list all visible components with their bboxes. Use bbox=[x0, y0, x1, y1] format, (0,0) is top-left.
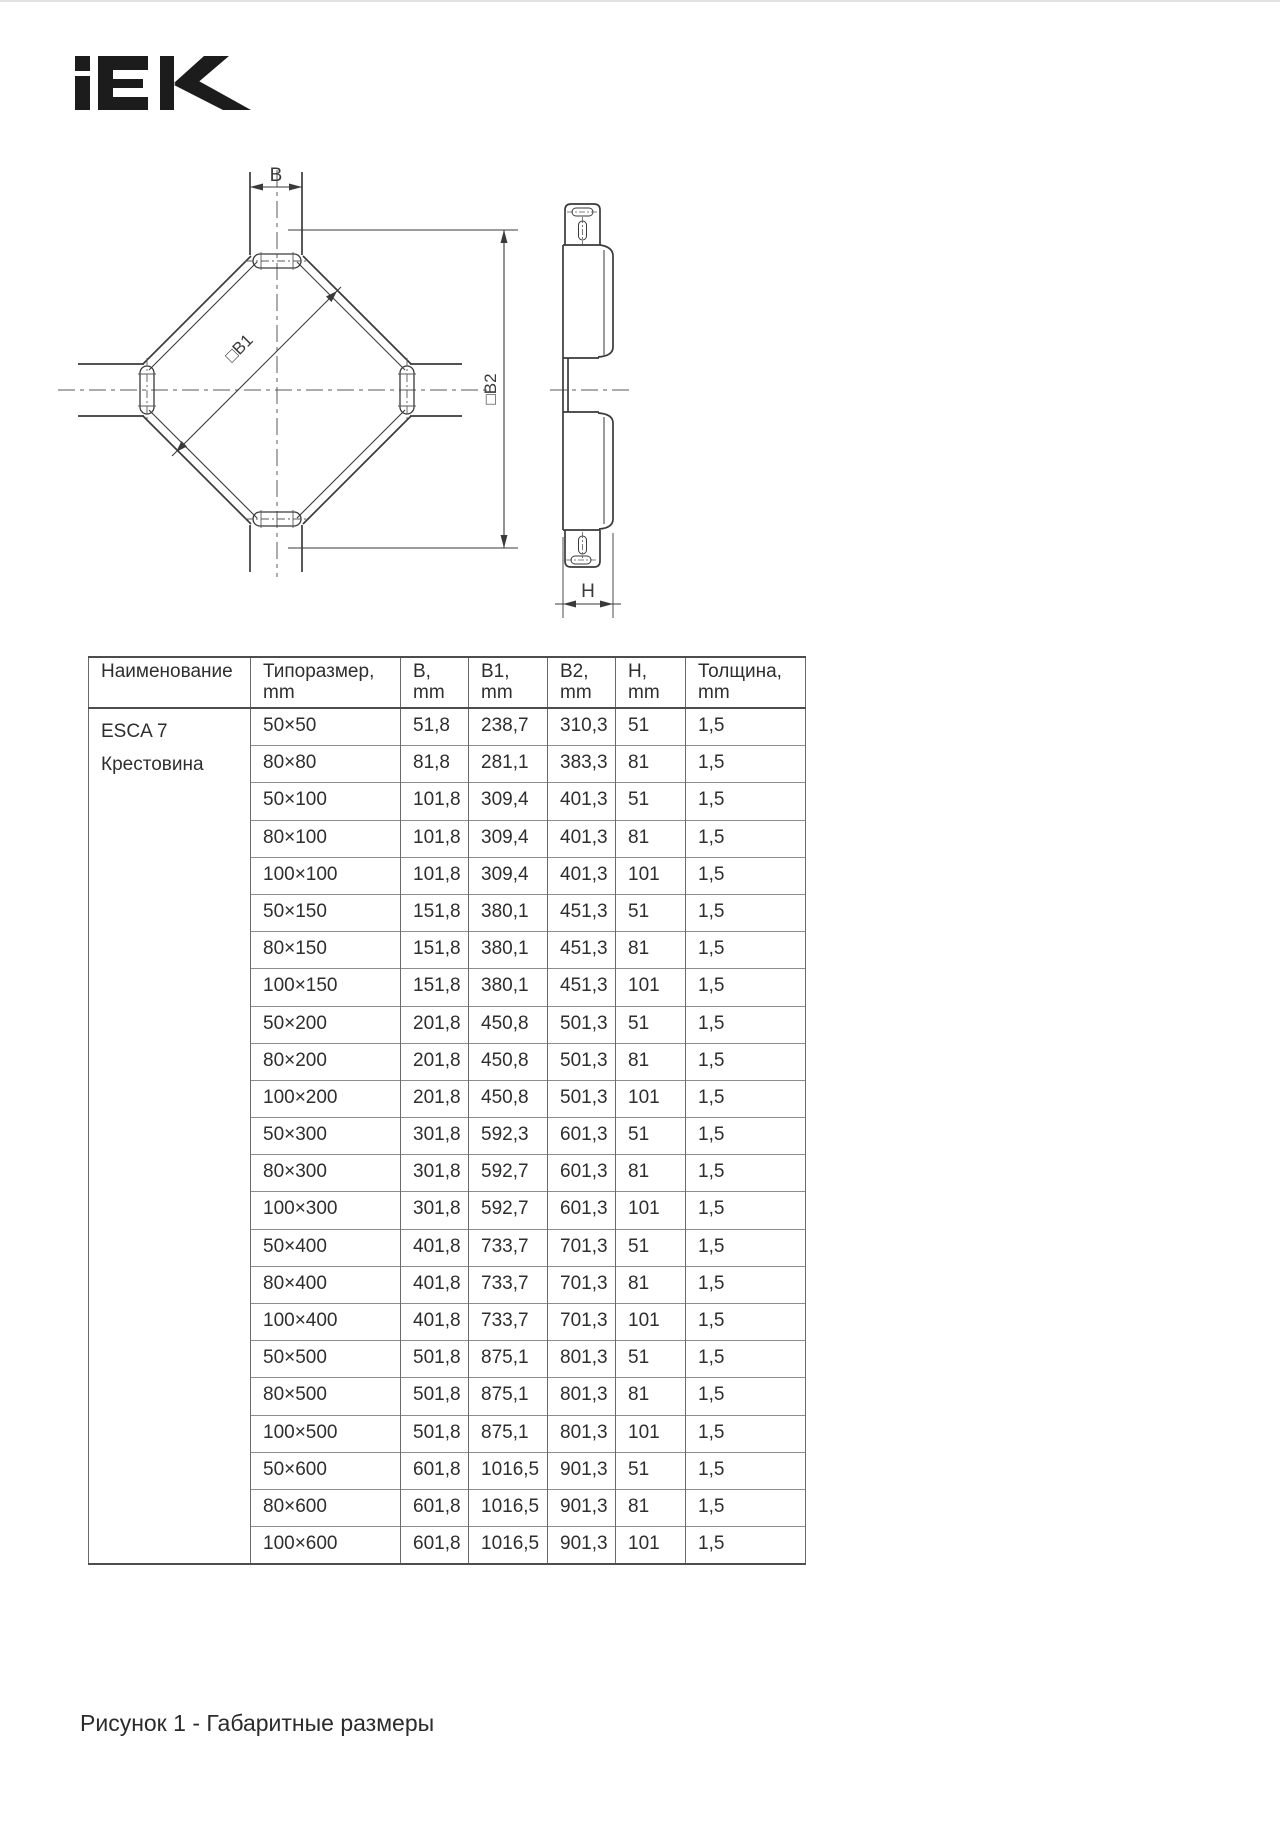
cell-b2: 601,3 bbox=[548, 1155, 616, 1192]
dim-label-b1: □B1 bbox=[221, 330, 256, 365]
cell-b2: 701,3 bbox=[548, 1304, 616, 1341]
cell-h: 101 bbox=[616, 1192, 686, 1229]
cell-size: 100×150 bbox=[251, 969, 401, 1006]
cell-b2: 451,3 bbox=[548, 969, 616, 1006]
cell-thickness: 1,5 bbox=[686, 894, 806, 931]
cell-b: 501,8 bbox=[401, 1341, 469, 1378]
cell-b: 51,8 bbox=[401, 708, 469, 746]
dim-b1: □B1 bbox=[172, 287, 341, 456]
cell-size: 50×400 bbox=[251, 1229, 401, 1266]
cell-b1: 592,7 bbox=[469, 1192, 548, 1229]
table-row: ESCA 7Крестовина50×5051,8238,7310,3511,5 bbox=[89, 708, 806, 746]
cell-size: 50×100 bbox=[251, 783, 401, 820]
cell-b: 601,8 bbox=[401, 1527, 469, 1565]
cell-size: 50×500 bbox=[251, 1341, 401, 1378]
cell-size: 100×400 bbox=[251, 1304, 401, 1341]
header-unit: mm bbox=[263, 682, 396, 703]
cell-thickness: 1,5 bbox=[686, 857, 806, 894]
cell-h: 51 bbox=[616, 1006, 686, 1043]
header-cell-thickness: Толщина, mm bbox=[686, 657, 806, 708]
cell-size: 50×300 bbox=[251, 1118, 401, 1155]
cell-b2: 601,3 bbox=[548, 1192, 616, 1229]
figure-caption: Рисунок 1 - Габаритные размеры bbox=[80, 1710, 434, 1737]
cell-b1: 238,7 bbox=[469, 708, 548, 746]
cell-size: 100×100 bbox=[251, 857, 401, 894]
cell-size: 50×150 bbox=[251, 894, 401, 931]
cell-thickness: 1,5 bbox=[686, 1452, 806, 1489]
cell-thickness: 1,5 bbox=[686, 1192, 806, 1229]
cell-thickness: 1,5 bbox=[686, 1527, 806, 1565]
cell-thickness: 1,5 bbox=[686, 783, 806, 820]
cell-b1: 309,4 bbox=[469, 820, 548, 857]
cell-thickness: 1,5 bbox=[686, 820, 806, 857]
cell-thickness: 1,5 bbox=[686, 1304, 806, 1341]
cell-h: 51 bbox=[616, 1229, 686, 1266]
cell-b: 151,8 bbox=[401, 894, 469, 931]
cell-b2: 451,3 bbox=[548, 932, 616, 969]
cell-b: 151,8 bbox=[401, 932, 469, 969]
cell-b1: 380,1 bbox=[469, 932, 548, 969]
dimensions-table: Наименование Типоразмер, mm B, mm B1, mm… bbox=[88, 656, 806, 1565]
cell-thickness: 1,5 bbox=[686, 1378, 806, 1415]
tab-slots bbox=[571, 208, 593, 564]
cell-size: 80×150 bbox=[251, 932, 401, 969]
cell-b: 401,8 bbox=[401, 1266, 469, 1303]
cell-b1: 450,8 bbox=[469, 1043, 548, 1080]
cell-b2: 801,3 bbox=[548, 1378, 616, 1415]
centerlines bbox=[58, 170, 630, 577]
header-label: Толщина, bbox=[698, 661, 801, 682]
cell-b2: 501,3 bbox=[548, 1043, 616, 1080]
cell-b1: 309,4 bbox=[469, 857, 548, 894]
cell-h: 81 bbox=[616, 820, 686, 857]
cell-b2: 801,3 bbox=[548, 1415, 616, 1452]
cell-h: 81 bbox=[616, 1043, 686, 1080]
cell-b2: 383,3 bbox=[548, 746, 616, 783]
cell-h: 51 bbox=[616, 1452, 686, 1489]
dim-label-b2: □B2 bbox=[481, 373, 500, 404]
cell-size: 80×600 bbox=[251, 1489, 401, 1526]
datasheet-page: B □B1 □B2 bbox=[0, 0, 1280, 1826]
cell-b: 501,8 bbox=[401, 1378, 469, 1415]
cell-h: 51 bbox=[616, 783, 686, 820]
cell-b: 151,8 bbox=[401, 969, 469, 1006]
cell-size: 80×300 bbox=[251, 1155, 401, 1192]
header-unit: mm bbox=[698, 682, 801, 703]
cell-b1: 380,1 bbox=[469, 894, 548, 931]
cell-b2: 801,3 bbox=[548, 1341, 616, 1378]
cell-size: 100×500 bbox=[251, 1415, 401, 1452]
cell-b2: 501,3 bbox=[548, 1080, 616, 1117]
cell-b2: 501,3 bbox=[548, 1006, 616, 1043]
header-label: Типоразмер, bbox=[263, 661, 396, 682]
cell-thickness: 1,5 bbox=[686, 1006, 806, 1043]
header-cell-b1: B1, mm bbox=[469, 657, 548, 708]
cell-b1: 1016,5 bbox=[469, 1527, 548, 1565]
cell-b2: 901,3 bbox=[548, 1452, 616, 1489]
cell-thickness: 1,5 bbox=[686, 708, 806, 746]
cell-thickness: 1,5 bbox=[686, 1341, 806, 1378]
cell-thickness: 1,5 bbox=[686, 969, 806, 1006]
cell-size: 80×400 bbox=[251, 1266, 401, 1303]
cell-b2: 451,3 bbox=[548, 894, 616, 931]
cell-thickness: 1,5 bbox=[686, 1489, 806, 1526]
cell-size: 100×300 bbox=[251, 1192, 401, 1229]
cell-b1: 733,7 bbox=[469, 1229, 548, 1266]
header-unit: mm bbox=[560, 682, 611, 703]
header-cell-b2: B2, mm bbox=[548, 657, 616, 708]
cell-b1: 733,7 bbox=[469, 1304, 548, 1341]
cell-b2: 701,3 bbox=[548, 1266, 616, 1303]
cell-b2: 401,3 bbox=[548, 820, 616, 857]
header-unit: mm bbox=[481, 682, 543, 703]
cell-h: 101 bbox=[616, 1527, 686, 1565]
header-cell-h: H, mm bbox=[616, 657, 686, 708]
cell-b: 201,8 bbox=[401, 1080, 469, 1117]
cell-h: 81 bbox=[616, 746, 686, 783]
cell-h: 101 bbox=[616, 857, 686, 894]
header-label: H, bbox=[628, 661, 681, 682]
cell-b1: 733,7 bbox=[469, 1266, 548, 1303]
cell-thickness: 1,5 bbox=[686, 1266, 806, 1303]
header-label: B1, bbox=[481, 661, 543, 682]
cell-b: 301,8 bbox=[401, 1155, 469, 1192]
cell-h: 101 bbox=[616, 1304, 686, 1341]
cell-thickness: 1,5 bbox=[686, 1118, 806, 1155]
cell-size: 100×600 bbox=[251, 1527, 401, 1565]
header-cell-size: Типоразмер, mm bbox=[251, 657, 401, 708]
cell-b1: 592,7 bbox=[469, 1155, 548, 1192]
cell-b2: 401,3 bbox=[548, 783, 616, 820]
cell-b1: 450,8 bbox=[469, 1080, 548, 1117]
dim-b: B bbox=[250, 165, 302, 191]
cell-thickness: 1,5 bbox=[686, 1043, 806, 1080]
cell-size: 50×600 bbox=[251, 1452, 401, 1489]
header-unit: mm bbox=[628, 682, 681, 703]
product-name-cell: ESCA 7Крестовина bbox=[89, 708, 251, 1564]
header-label: Наименование bbox=[101, 661, 246, 682]
cell-h: 101 bbox=[616, 1080, 686, 1117]
cell-b1: 875,1 bbox=[469, 1341, 548, 1378]
dim-b2: □B2 bbox=[288, 230, 518, 548]
cell-thickness: 1,5 bbox=[686, 1415, 806, 1452]
cell-size: 80×500 bbox=[251, 1378, 401, 1415]
header-cell-name: Наименование bbox=[89, 657, 251, 708]
cell-thickness: 1,5 bbox=[686, 1080, 806, 1117]
dim-label-b: B bbox=[270, 165, 283, 186]
cell-h: 81 bbox=[616, 1155, 686, 1192]
dimension-drawing: B □B1 □B2 bbox=[0, 0, 700, 660]
cell-b1: 450,8 bbox=[469, 1006, 548, 1043]
cell-size: 100×200 bbox=[251, 1080, 401, 1117]
cell-b: 81,8 bbox=[401, 746, 469, 783]
cell-size: 80×80 bbox=[251, 746, 401, 783]
cell-h: 81 bbox=[616, 1266, 686, 1303]
cell-b1: 309,4 bbox=[469, 783, 548, 820]
cell-b1: 875,1 bbox=[469, 1378, 548, 1415]
cell-h: 81 bbox=[616, 932, 686, 969]
cell-h: 51 bbox=[616, 1341, 686, 1378]
cell-b1: 592,3 bbox=[469, 1118, 548, 1155]
cell-b: 601,8 bbox=[401, 1452, 469, 1489]
cell-b2: 701,3 bbox=[548, 1229, 616, 1266]
cell-h: 101 bbox=[616, 1415, 686, 1452]
cell-h: 51 bbox=[616, 1118, 686, 1155]
cell-b1: 380,1 bbox=[469, 969, 548, 1006]
cell-b: 501,8 bbox=[401, 1415, 469, 1452]
product-name-line2: Крестовина bbox=[101, 748, 246, 781]
cell-size: 50×200 bbox=[251, 1006, 401, 1043]
cell-b: 301,8 bbox=[401, 1192, 469, 1229]
header-label: B2, bbox=[560, 661, 611, 682]
cell-b1: 1016,5 bbox=[469, 1489, 548, 1526]
cell-h: 51 bbox=[616, 894, 686, 931]
product-name-line1: ESCA 7 bbox=[101, 715, 246, 748]
cell-b: 201,8 bbox=[401, 1006, 469, 1043]
cell-b: 401,8 bbox=[401, 1304, 469, 1341]
cell-size: 80×100 bbox=[251, 820, 401, 857]
header-unit: mm bbox=[413, 682, 464, 703]
side-view bbox=[563, 204, 613, 567]
cell-b2: 601,3 bbox=[548, 1118, 616, 1155]
cell-b2: 310,3 bbox=[548, 708, 616, 746]
cell-h: 81 bbox=[616, 1489, 686, 1526]
cell-size: 80×200 bbox=[251, 1043, 401, 1080]
cell-b1: 875,1 bbox=[469, 1415, 548, 1452]
header-cell-b: B, mm bbox=[401, 657, 469, 708]
cell-h: 81 bbox=[616, 1378, 686, 1415]
cell-b1: 1016,5 bbox=[469, 1452, 548, 1489]
cell-b: 101,8 bbox=[401, 857, 469, 894]
cell-b2: 401,3 bbox=[548, 857, 616, 894]
cell-b: 401,8 bbox=[401, 1229, 469, 1266]
cell-b2: 901,3 bbox=[548, 1527, 616, 1565]
dim-label-h: H bbox=[581, 581, 595, 602]
table-header-row: Наименование Типоразмер, mm B, mm B1, mm… bbox=[89, 657, 806, 708]
cell-h: 51 bbox=[616, 708, 686, 746]
cell-b: 201,8 bbox=[401, 1043, 469, 1080]
cell-b: 301,8 bbox=[401, 1118, 469, 1155]
cell-size: 50×50 bbox=[251, 708, 401, 746]
cell-b1: 281,1 bbox=[469, 746, 548, 783]
cell-b: 101,8 bbox=[401, 820, 469, 857]
cell-thickness: 1,5 bbox=[686, 746, 806, 783]
header-label: B, bbox=[413, 661, 464, 682]
plan-view bbox=[78, 172, 462, 572]
cell-b: 101,8 bbox=[401, 783, 469, 820]
cell-thickness: 1,5 bbox=[686, 1155, 806, 1192]
cell-b2: 901,3 bbox=[548, 1489, 616, 1526]
cell-b: 601,8 bbox=[401, 1489, 469, 1526]
cell-thickness: 1,5 bbox=[686, 1229, 806, 1266]
cell-thickness: 1,5 bbox=[686, 932, 806, 969]
cell-h: 101 bbox=[616, 969, 686, 1006]
